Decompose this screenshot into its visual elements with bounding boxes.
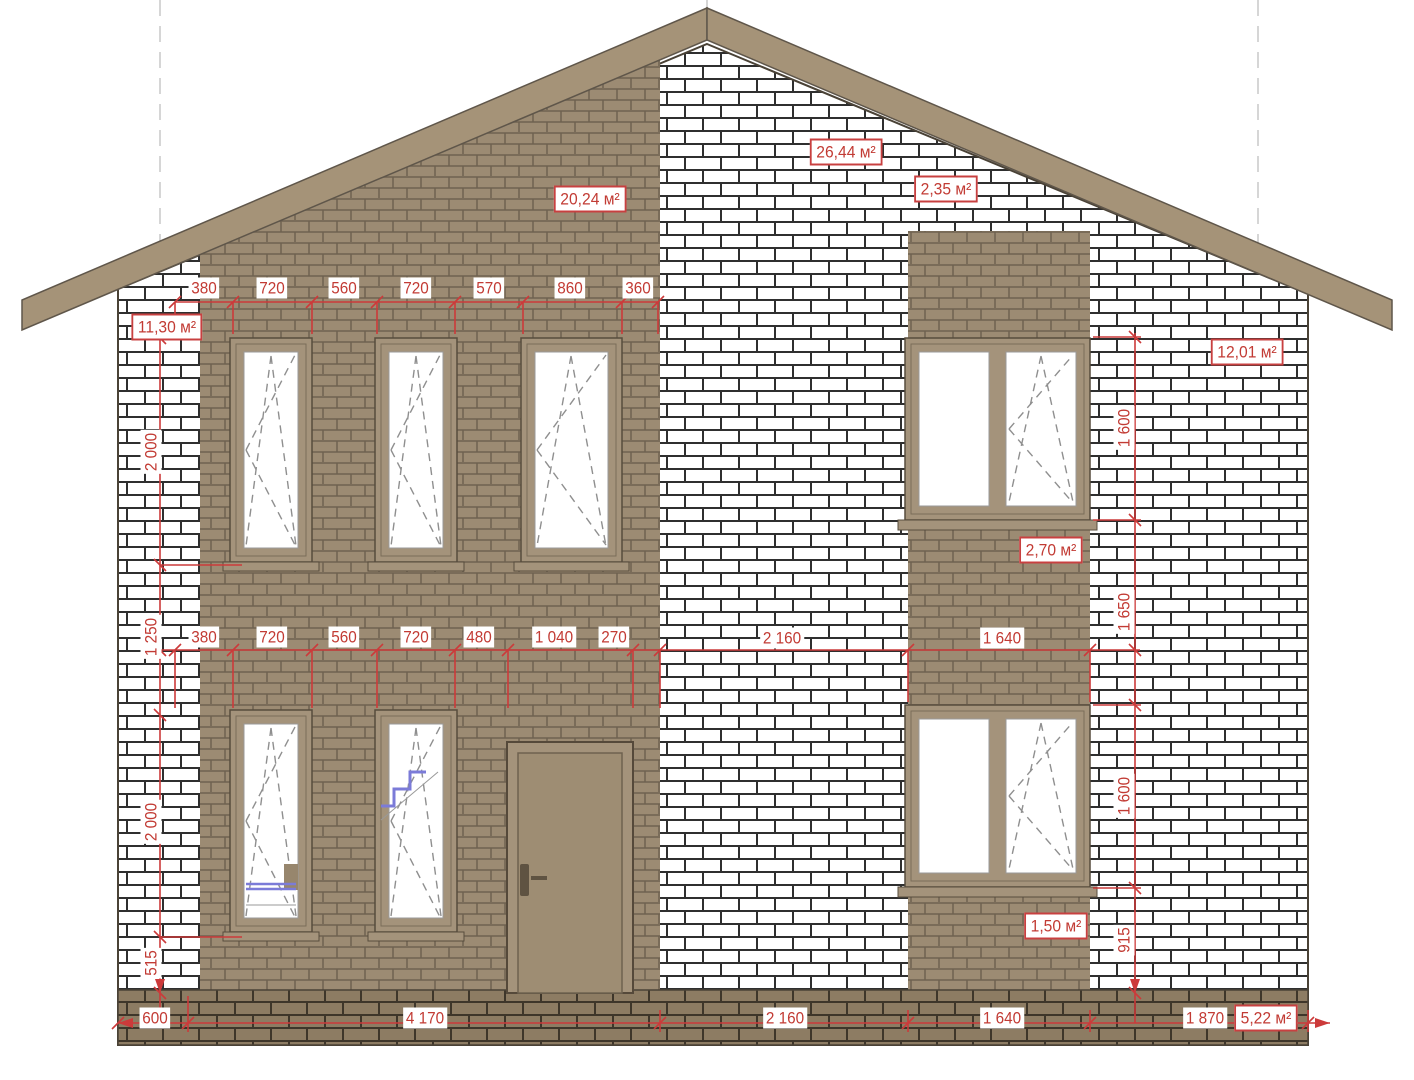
stair-landing — [284, 864, 298, 890]
window-sill — [898, 887, 1097, 897]
dim-mid-8: 2 160 — [760, 628, 804, 649]
window-upper-left-3 — [514, 338, 629, 571]
window-sill — [223, 562, 319, 571]
area-label-2-70: 2,70 м² — [1019, 537, 1083, 564]
dim-mid-3: 560 — [329, 627, 360, 648]
door-leaf — [518, 753, 622, 993]
plinth — [118, 990, 1308, 1045]
dim-left-3: 2 000 — [141, 800, 162, 844]
area-label-11-30: 11,30 м² — [131, 314, 202, 341]
dim-mid-2: 720 — [257, 627, 288, 648]
dim-bot-3: 2 160 — [763, 1008, 807, 1029]
area-label-26-44: 26,44 м² — [810, 139, 882, 166]
dim-bot-5: 1 870 — [1183, 1008, 1227, 1029]
dim-right-2: 1 650 — [1114, 590, 1135, 634]
elevation-drawing: 380 720 560 720 570 860 360 380 720 560 … — [0, 0, 1414, 1080]
door-handle — [520, 864, 529, 896]
dim-left-2: 1 250 — [141, 615, 162, 659]
window-sill — [514, 562, 629, 571]
window-upper-right — [898, 338, 1097, 530]
fixed-pane — [919, 352, 989, 506]
dim-left-1: 2 000 — [141, 430, 162, 474]
dim-right-3: 1 600 — [1114, 774, 1135, 818]
opening-pane — [1006, 352, 1076, 506]
window-lower-left-1 — [223, 710, 319, 941]
dim-mid-6: 1 040 — [532, 627, 576, 648]
dim-top-2: 720 — [257, 278, 288, 299]
window-sill — [368, 932, 464, 941]
dim-bot-1: 600 — [140, 1008, 171, 1029]
entrance-door — [507, 742, 633, 993]
window-sill — [898, 520, 1097, 530]
window-upper-left-2 — [368, 338, 464, 571]
dim-top-4: 720 — [401, 278, 432, 299]
window-upper-left-1 — [223, 338, 319, 571]
dim-bot-2: 4 170 — [403, 1008, 447, 1029]
area-label-12-01: 12,01 м² — [1211, 339, 1283, 366]
area-label-20-24: 20,24 м² — [554, 186, 626, 213]
area-label-1-50: 1,50 м² — [1024, 913, 1088, 940]
opening-pane — [1006, 719, 1076, 873]
dim-right-4: 915 — [1114, 925, 1135, 956]
facade-svg — [0, 0, 1414, 1080]
dim-right-1: 1 600 — [1114, 406, 1135, 450]
dim-bot-4: 1 640 — [980, 1008, 1024, 1029]
dim-mid-7: 270 — [599, 627, 630, 648]
dim-top-6: 860 — [555, 278, 586, 299]
door-handle-bar — [531, 876, 547, 880]
window-sill — [368, 562, 464, 571]
area-label-5-22: 5,22 м² — [1234, 1005, 1298, 1032]
area-label-2-35: 2,35 м² — [914, 176, 978, 203]
dim-top-1: 380 — [189, 278, 220, 299]
dim-top-5: 570 — [474, 278, 505, 299]
window-lower-left-2 — [368, 710, 464, 941]
dim-top-7: 360 — [623, 278, 654, 299]
dim-top-3: 560 — [329, 278, 360, 299]
dim-mid-5: 480 — [464, 627, 495, 648]
fixed-pane — [919, 719, 989, 873]
dim-mid-4: 720 — [401, 627, 432, 648]
dim-mid-1: 380 — [189, 627, 220, 648]
dim-left-4: 515 — [141, 948, 162, 979]
window-lower-right — [898, 705, 1097, 897]
dim-mid-9: 1 640 — [980, 628, 1024, 649]
